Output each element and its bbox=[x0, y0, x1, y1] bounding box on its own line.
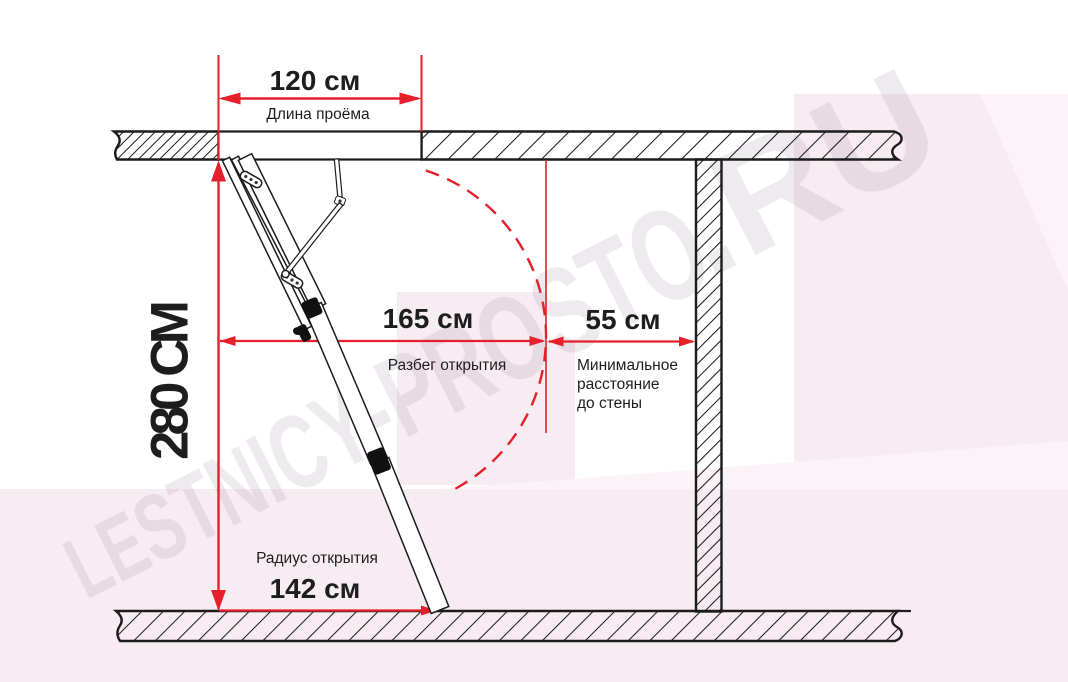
svg-text:Разбег открытия: Разбег открытия bbox=[388, 357, 507, 374]
svg-text:55 см: 55 см bbox=[585, 304, 660, 335]
svg-text:расстояние: расстояние bbox=[577, 376, 660, 393]
svg-text:165 см: 165 см bbox=[383, 303, 474, 334]
svg-text:280 СМ: 280 СМ bbox=[141, 303, 200, 460]
svg-text:до стены: до стены bbox=[577, 395, 642, 412]
svg-text:142 см: 142 см bbox=[270, 573, 361, 604]
svg-text:Длина проёма: Длина проёма bbox=[266, 106, 370, 123]
svg-text:Радиус открытия: Радиус открытия bbox=[256, 550, 378, 567]
svg-text:120 см: 120 см bbox=[270, 65, 361, 96]
svg-text:Минимальное: Минимальное bbox=[577, 357, 678, 374]
